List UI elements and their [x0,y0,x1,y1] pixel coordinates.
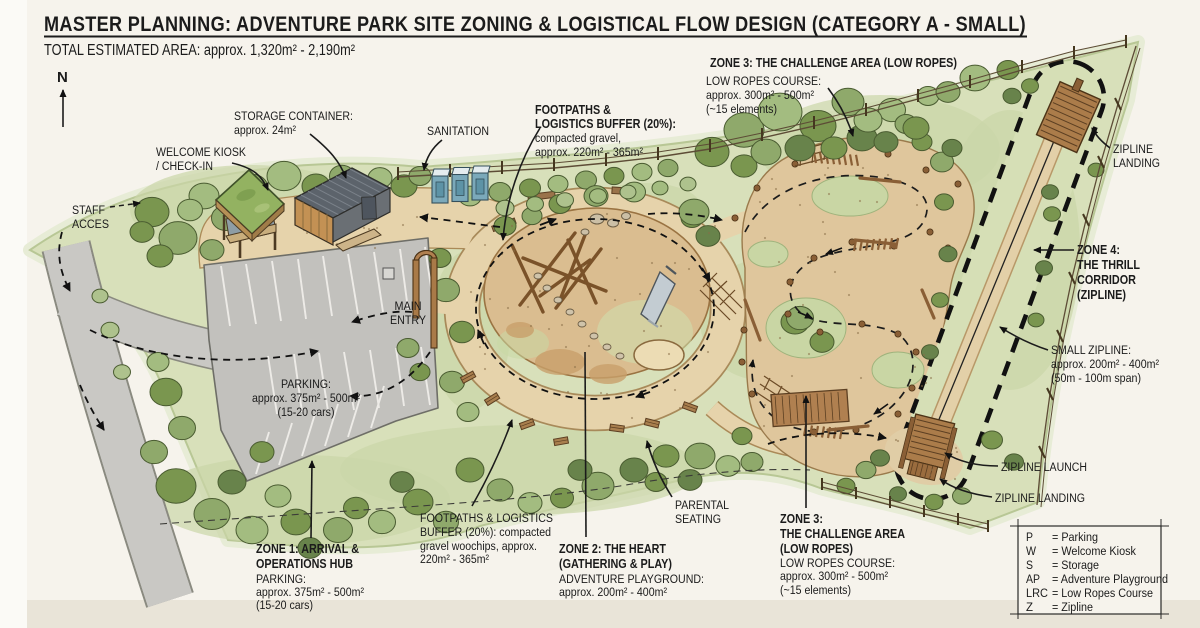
svg-text:N: N [57,69,68,86]
svg-text:STAFF: STAFF [72,203,105,217]
svg-text:TOTAL ESTIMATED AREA: approx.: TOTAL ESTIMATED AREA: approx. 1,320m² - … [44,42,355,59]
svg-text:= Adventure Playground: = Adventure Playground [1052,572,1168,586]
svg-text:LANDING: LANDING [1113,156,1160,170]
svg-text:ZIPLINE LANDING: ZIPLINE LANDING [995,491,1085,505]
svg-text:ZONE 1: ARRIVAL &: ZONE 1: ARRIVAL & [256,542,359,556]
svg-text:BUFFER (20%): compacted: BUFFER (20%): compacted [420,525,551,539]
svg-text:= Parking: = Parking [1052,530,1098,544]
svg-text:MAIN: MAIN [395,299,422,313]
svg-text:CORRIDOR: CORRIDOR [1077,273,1136,287]
svg-text:approx. 220m² - 365m²: approx. 220m² - 365m² [535,145,643,159]
svg-text:approx. 24m²: approx. 24m² [234,123,296,137]
svg-text:220m² - 365m²: 220m² - 365m² [420,552,489,566]
svg-text:(50m - 100m span): (50m - 100m span) [1051,371,1141,385]
svg-text:= Welcome Kiosk: = Welcome Kiosk [1052,544,1137,558]
svg-text:STORAGE CONTAINER:: STORAGE CONTAINER: [234,109,353,123]
svg-text:PARENTAL: PARENTAL [675,498,729,512]
svg-text:= Zipline: = Zipline [1052,600,1093,614]
svg-text:(GATHERING & PLAY): (GATHERING & PLAY) [559,557,672,571]
svg-text:W: W [1026,544,1036,558]
svg-text:LOW ROPES COURSE:: LOW ROPES COURSE: [706,74,821,88]
svg-text:approx. 300m² - 500m²: approx. 300m² - 500m² [706,88,814,102]
svg-text:gravel woochips, approx.: gravel woochips, approx. [420,539,537,553]
svg-text:approx. 200m² - 400m²: approx. 200m² - 400m² [1051,357,1159,371]
svg-text:PARKING:: PARKING: [256,572,306,586]
svg-text:(~15 elements): (~15 elements) [780,583,851,597]
svg-text:S: S [1026,558,1033,572]
svg-text:Z: Z [1026,600,1033,614]
svg-text:FOOTPATHS & LOGISTICS: FOOTPATHS & LOGISTICS [420,511,553,525]
svg-text:= Storage: = Storage [1052,558,1099,572]
svg-text:AP: AP [1026,572,1040,586]
svg-text:THE THRILL: THE THRILL [1077,258,1140,272]
svg-text:LOW ROPES COURSE:: LOW ROPES COURSE: [780,556,895,570]
svg-text:compacted gravel,: compacted gravel, [535,131,621,145]
svg-text:SANITATION: SANITATION [427,124,489,138]
svg-text:MASTER PLANNING: ADVENTURE PAR: MASTER PLANNING: ADVENTURE PARK SITE ZON… [44,12,1026,36]
svg-text:(15-20 cars): (15-20 cars) [278,405,335,419]
svg-text:THE CHALLENGE AREA: THE CHALLENGE AREA [780,527,905,541]
svg-text:ENTRY: ENTRY [390,313,426,327]
svg-text:= Low Ropes Course: = Low Ropes Course [1052,586,1153,600]
svg-text:approx. 375m² - 500m²: approx. 375m² - 500m² [256,585,364,599]
svg-text:WELCOME KIOSK: WELCOME KIOSK [156,145,247,159]
svg-text:approx. 200m² - 400m²: approx. 200m² - 400m² [559,585,667,599]
svg-text:ZONE 2: THE HEART: ZONE 2: THE HEART [559,542,666,556]
svg-text:ZIPLINE: ZIPLINE [1113,142,1153,156]
svg-text:ZONE 4:: ZONE 4: [1077,243,1120,257]
svg-text:LOGISTICS BUFFER (20%):: LOGISTICS BUFFER (20%): [535,117,676,131]
svg-text:approx. 300m² - 500m²: approx. 300m² - 500m² [780,569,888,583]
svg-text:ZIPLINE LAUNCH: ZIPLINE LAUNCH [1001,460,1087,474]
svg-text:ZONE 3:: ZONE 3: [780,512,823,526]
svg-text:(ZIPLINE): (ZIPLINE) [1077,288,1126,302]
svg-text:/ CHECK-IN: / CHECK-IN [156,159,213,173]
svg-text:P: P [1026,530,1033,544]
svg-text:SMALL ZIPLINE:: SMALL ZIPLINE: [1051,343,1131,357]
svg-text:LRC: LRC [1026,586,1048,600]
svg-text:OPERATIONS HUB: OPERATIONS HUB [256,557,353,571]
svg-text:(~15 elements): (~15 elements) [706,102,777,116]
svg-text:PARKING:: PARKING: [281,377,331,391]
svg-text:FOOTPATHS &: FOOTPATHS & [535,103,611,117]
svg-text:approx. 375m² - 500m²: approx. 375m² - 500m² [252,391,360,405]
svg-text:ZONE 3: THE CHALLENGE AREA (LO: ZONE 3: THE CHALLENGE AREA (LOW ROPES) [710,56,957,70]
svg-text:ADVENTURE PLAYGROUND:: ADVENTURE PLAYGROUND: [559,572,704,586]
svg-text:ACCES: ACCES [72,217,109,231]
svg-text:(LOW ROPES): (LOW ROPES) [780,542,853,556]
svg-text:SEATING: SEATING [675,512,721,526]
svg-text:(15-20 cars): (15-20 cars) [256,598,313,612]
